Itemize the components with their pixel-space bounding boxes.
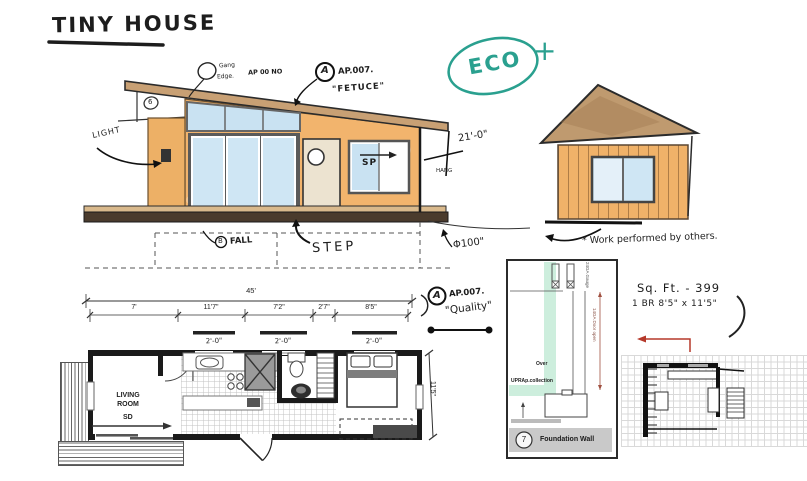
- specs-bracket: [729, 296, 744, 337]
- ap007-badge: A: [321, 65, 329, 76]
- fall-badge: B: [218, 237, 223, 245]
- edge-note-line2: Edge.: [217, 73, 234, 81]
- page-title: TINY HOUSE: [52, 11, 217, 38]
- plan-dim-5: 8'5": [351, 304, 391, 311]
- quality-badge: A: [433, 290, 441, 301]
- electrical-box: [161, 149, 171, 162]
- title-underline: [49, 42, 163, 45]
- foundation-detail-drawing: [510, 264, 602, 448]
- floor-plan-drawing: [82, 294, 437, 461]
- edge-note-line1: Gang: [219, 61, 235, 69]
- edge-note-line3: AP 00 NO: [248, 67, 283, 76]
- plan-dim-3: 7'2": [259, 304, 299, 311]
- plan-total-width: 45': [236, 286, 266, 295]
- plan-dim-1: 7': [114, 304, 154, 311]
- plan-height-dim: 11'5": [429, 381, 436, 396]
- fall-note: FALL: [230, 235, 253, 247]
- roof-mark: 6: [148, 98, 152, 106]
- grid-plan-sketch: [643, 363, 744, 437]
- detail-number: 7: [520, 435, 528, 444]
- specs-bed: 1 BR 8'5" x 11'5": [632, 299, 717, 309]
- gable-elevation-drawing: [541, 85, 697, 242]
- ap007-ref: AP.007.: [338, 65, 374, 77]
- plan-dim-2: 11'7": [191, 304, 231, 311]
- step-note: STEP: [312, 239, 357, 256]
- detail-gauge-note: 24GA Gauge: [585, 262, 590, 288]
- red-reference-line: [637, 336, 690, 353]
- living-room-label: LIVING ROOM: [106, 391, 150, 410]
- detail-note-over: Over: [536, 361, 547, 367]
- detail-title: Foundation Wall: [540, 436, 594, 443]
- plan-dim-4: 2'7": [304, 304, 344, 311]
- sliding-door-label: SD: [123, 414, 133, 421]
- detail-door-note: 14GA Door open: [592, 308, 597, 342]
- hang-note: HANG: [436, 168, 452, 174]
- sp-label: SP: [362, 158, 377, 168]
- specs-sqft: Sq. Ft. - 399: [637, 281, 720, 295]
- tiny-house-sketch: TINY HOUSE Gang Edge. AP 00 NO 6 A AP.00…: [0, 0, 807, 481]
- eco-plus: +: [533, 34, 556, 67]
- detail-note-collection: UPRAp.collection: [511, 378, 553, 384]
